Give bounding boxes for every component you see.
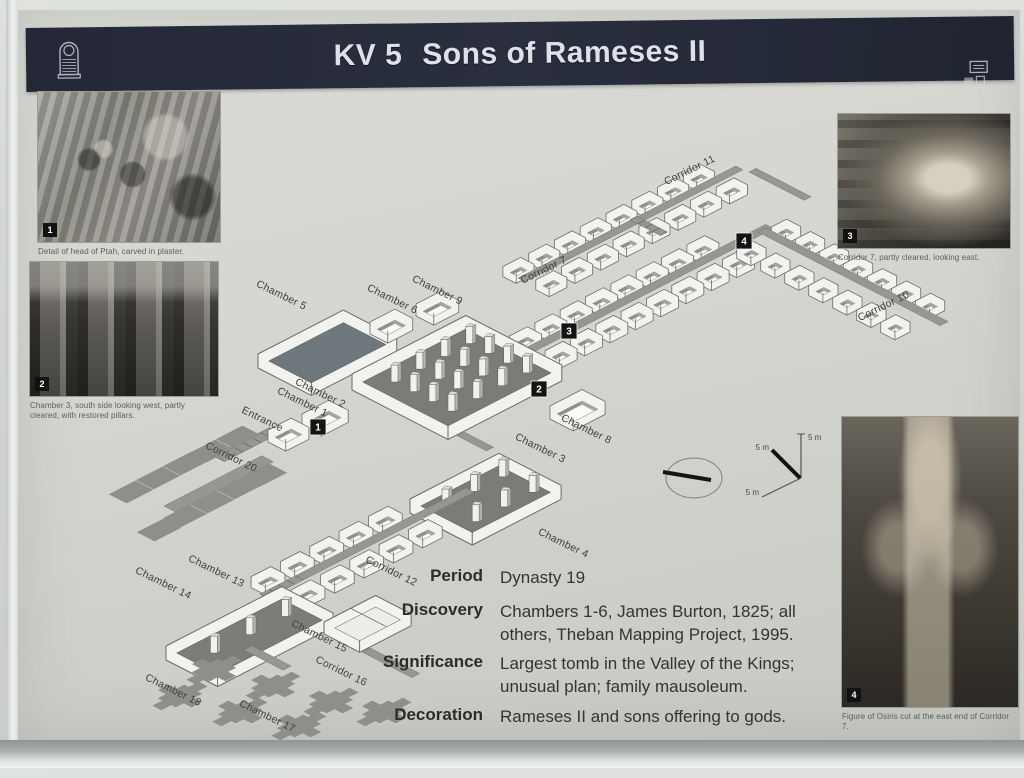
tomb-structure bbox=[391, 365, 398, 382]
tomb-structure bbox=[217, 634, 220, 653]
tomb-structure bbox=[472, 505, 479, 522]
tomb-structure bbox=[466, 327, 473, 344]
tomb-structure bbox=[471, 474, 478, 491]
tomb-structure bbox=[479, 503, 482, 522]
photo-caption: Figure of Osiris cut at the east end of … bbox=[842, 712, 1018, 732]
tomb-structure bbox=[429, 385, 436, 402]
photo-corridor7: 3 bbox=[838, 114, 1010, 248]
tomb-structure bbox=[246, 618, 253, 635]
marker-number: 3 bbox=[566, 327, 572, 338]
diagram-label: Chamber 4 bbox=[536, 526, 590, 561]
info-value: Largest tomb in the Valley of the Kings;… bbox=[500, 652, 852, 698]
photo-ptah-head: 1 bbox=[38, 92, 220, 242]
tomb-structure bbox=[448, 337, 451, 356]
photo-frame-edge-left bbox=[6, 0, 18, 768]
tomb-structure bbox=[762, 478, 801, 497]
tomb-structure bbox=[473, 325, 476, 344]
tomb-structure bbox=[461, 370, 464, 389]
tomb-structure bbox=[486, 357, 489, 376]
tomb-structure bbox=[442, 360, 445, 379]
marker-number: 1 bbox=[315, 423, 321, 434]
tomb-structure bbox=[508, 488, 511, 507]
tomb-structure bbox=[749, 168, 811, 200]
tomb-structure bbox=[485, 336, 492, 353]
photo-osiris-figure: 4 bbox=[842, 417, 1018, 707]
tomb-structure bbox=[467, 347, 470, 366]
tomb-structure bbox=[460, 349, 467, 366]
tomb-structure bbox=[492, 334, 495, 353]
info-label: Significance bbox=[321, 652, 483, 698]
scale-label: 5 m bbox=[746, 488, 760, 497]
tomb-structure bbox=[479, 359, 486, 376]
tomb-structure bbox=[210, 636, 217, 653]
info-row-period: Period Dynasty 19 bbox=[321, 566, 852, 589]
diagram-label: Chamber 13 bbox=[186, 553, 246, 590]
tomb-structure bbox=[536, 473, 539, 492]
photo-number-badge: 3 bbox=[843, 229, 857, 243]
photo-frame-edge-bottom bbox=[0, 740, 1024, 768]
info-row-discovery: Discovery Chambers 1-6, James Burton, 18… bbox=[321, 600, 852, 646]
tomb-structure bbox=[454, 372, 461, 389]
marker-number: 4 bbox=[741, 237, 747, 248]
photo-number-badge: 2 bbox=[35, 377, 49, 391]
tomb-structure bbox=[499, 460, 506, 477]
scale-label: 5 m bbox=[808, 433, 822, 442]
tomb-structure bbox=[480, 380, 483, 399]
tomb-structure bbox=[473, 382, 480, 399]
tomb-structure bbox=[530, 354, 533, 373]
photo-caption: Chamber 3, south side looking west, part… bbox=[30, 401, 208, 421]
tomb-structure bbox=[441, 339, 448, 356]
tomb-structure bbox=[506, 458, 509, 477]
photo-caption: Corridor 7, partly cleared, looking east… bbox=[838, 253, 1010, 263]
tomb-structure bbox=[772, 450, 800, 478]
tomb-structure bbox=[663, 472, 711, 480]
tomb-structure bbox=[504, 346, 511, 363]
tomb-structure bbox=[501, 490, 508, 507]
tomb-structure bbox=[505, 367, 508, 386]
photo-chamber3: 2 bbox=[30, 262, 218, 396]
tomb-structure bbox=[417, 373, 420, 392]
info-value: Chambers 1-6, James Burton, 1825; all ot… bbox=[500, 600, 852, 646]
tomb-structure bbox=[410, 375, 417, 392]
tomb-structure bbox=[455, 392, 458, 411]
tomb-structure bbox=[435, 362, 442, 379]
tomb-structure bbox=[398, 363, 401, 382]
diagram-label: Chamber 5 bbox=[254, 278, 308, 313]
info-label: Period bbox=[321, 566, 483, 589]
tomb-structure bbox=[511, 344, 514, 363]
tomb-structure bbox=[289, 597, 292, 616]
tomb-structure bbox=[478, 472, 481, 491]
info-value: Dynasty 19 bbox=[500, 566, 852, 589]
tomb-structure bbox=[282, 599, 289, 616]
scale-label: 5 m bbox=[756, 443, 770, 452]
marker-number: 2 bbox=[536, 385, 542, 396]
info-row-significance: Significance Largest tomb in the Valley … bbox=[321, 652, 852, 698]
info-row-decoration: Decoration Rameses II and sons offering … bbox=[321, 705, 852, 728]
tomb-structure bbox=[529, 475, 536, 492]
info-label: Discovery bbox=[321, 600, 483, 646]
photo-caption: Detail of head of Ptah, carved in plaste… bbox=[38, 247, 223, 257]
info-value: Rameses II and sons offering to gods. bbox=[500, 705, 852, 728]
tomb-structure bbox=[436, 383, 439, 402]
tomb-structure bbox=[253, 616, 256, 635]
tomb-structure bbox=[498, 369, 505, 386]
diagram-label: Chamber 3 bbox=[513, 431, 567, 466]
tomb-structure bbox=[523, 356, 530, 373]
tomb-structure bbox=[416, 352, 423, 369]
info-label: Decoration bbox=[321, 705, 483, 728]
tomb-structure bbox=[448, 394, 455, 411]
tomb-structure bbox=[423, 350, 426, 369]
photo-number-badge: 1 bbox=[43, 223, 57, 237]
diagram-label: Chamber 14 bbox=[133, 565, 193, 602]
